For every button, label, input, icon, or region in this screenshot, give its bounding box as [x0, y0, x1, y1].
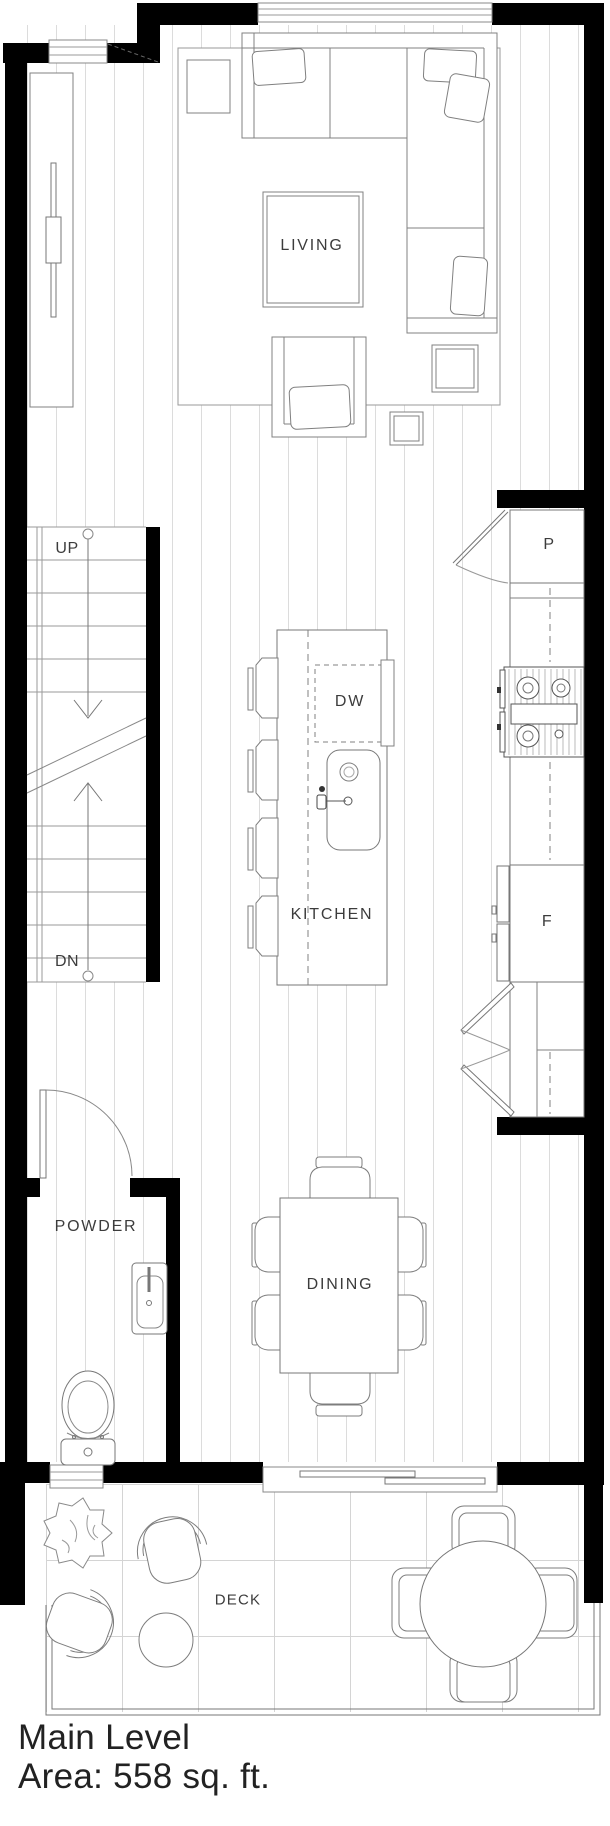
burner-icon	[517, 677, 539, 699]
ottoman	[390, 412, 423, 445]
bar-stools	[248, 658, 278, 956]
label-dining: DINING	[307, 1276, 374, 1294]
range-stove	[497, 667, 584, 757]
tree-plant	[44, 1498, 112, 1568]
plan-title: Main Level	[18, 1718, 270, 1757]
floor-plan-page: UP DN LIVING DW KITCHEN P F POWDER DININ…	[0, 0, 610, 1826]
deck-dining-set	[392, 1506, 577, 1702]
label-living: LIVING	[280, 237, 343, 255]
armchair	[272, 337, 366, 437]
sofa-pillow	[252, 48, 306, 86]
burner-icon	[517, 725, 539, 747]
label-powder: POWDER	[55, 1218, 138, 1236]
lounge-chair-left	[38, 1579, 123, 1667]
burner-icon	[552, 679, 570, 697]
kitchen-closet	[461, 982, 584, 1117]
sofa-pillow	[450, 256, 488, 316]
chair-pillow	[289, 384, 351, 429]
side-table-top	[187, 60, 230, 113]
staircase	[27, 527, 146, 982]
plan-area: Area: 558 sq. ft.	[18, 1757, 270, 1796]
burner-icon	[555, 730, 563, 738]
plan-caption: Main Level Area: 558 sq. ft.	[18, 1718, 270, 1796]
side-table-right	[432, 345, 478, 392]
lounge-chair-top	[131, 1510, 213, 1588]
label-fridge: F	[542, 913, 552, 931]
pantry	[453, 510, 584, 583]
living-window	[258, 3, 492, 22]
sofa-pillow	[443, 73, 490, 123]
label-kitchen: KITCHEN	[291, 906, 374, 924]
powder-window	[50, 1465, 103, 1488]
deck-side-table	[139, 1613, 193, 1667]
deck-round-table	[420, 1541, 546, 1667]
faucet-icon	[319, 786, 325, 792]
sliding-patio-door	[263, 1467, 497, 1492]
label-pantry: P	[543, 536, 554, 554]
refrigerator	[492, 865, 584, 982]
label-deck: DECK	[215, 1592, 261, 1609]
toilet	[61, 1371, 115, 1465]
label-dishwasher: DW	[335, 693, 365, 711]
powder-door	[40, 1090, 132, 1178]
powder-vanity-sink	[132, 1263, 167, 1334]
label-up: UP	[55, 540, 78, 558]
label-down: DN	[55, 953, 79, 971]
